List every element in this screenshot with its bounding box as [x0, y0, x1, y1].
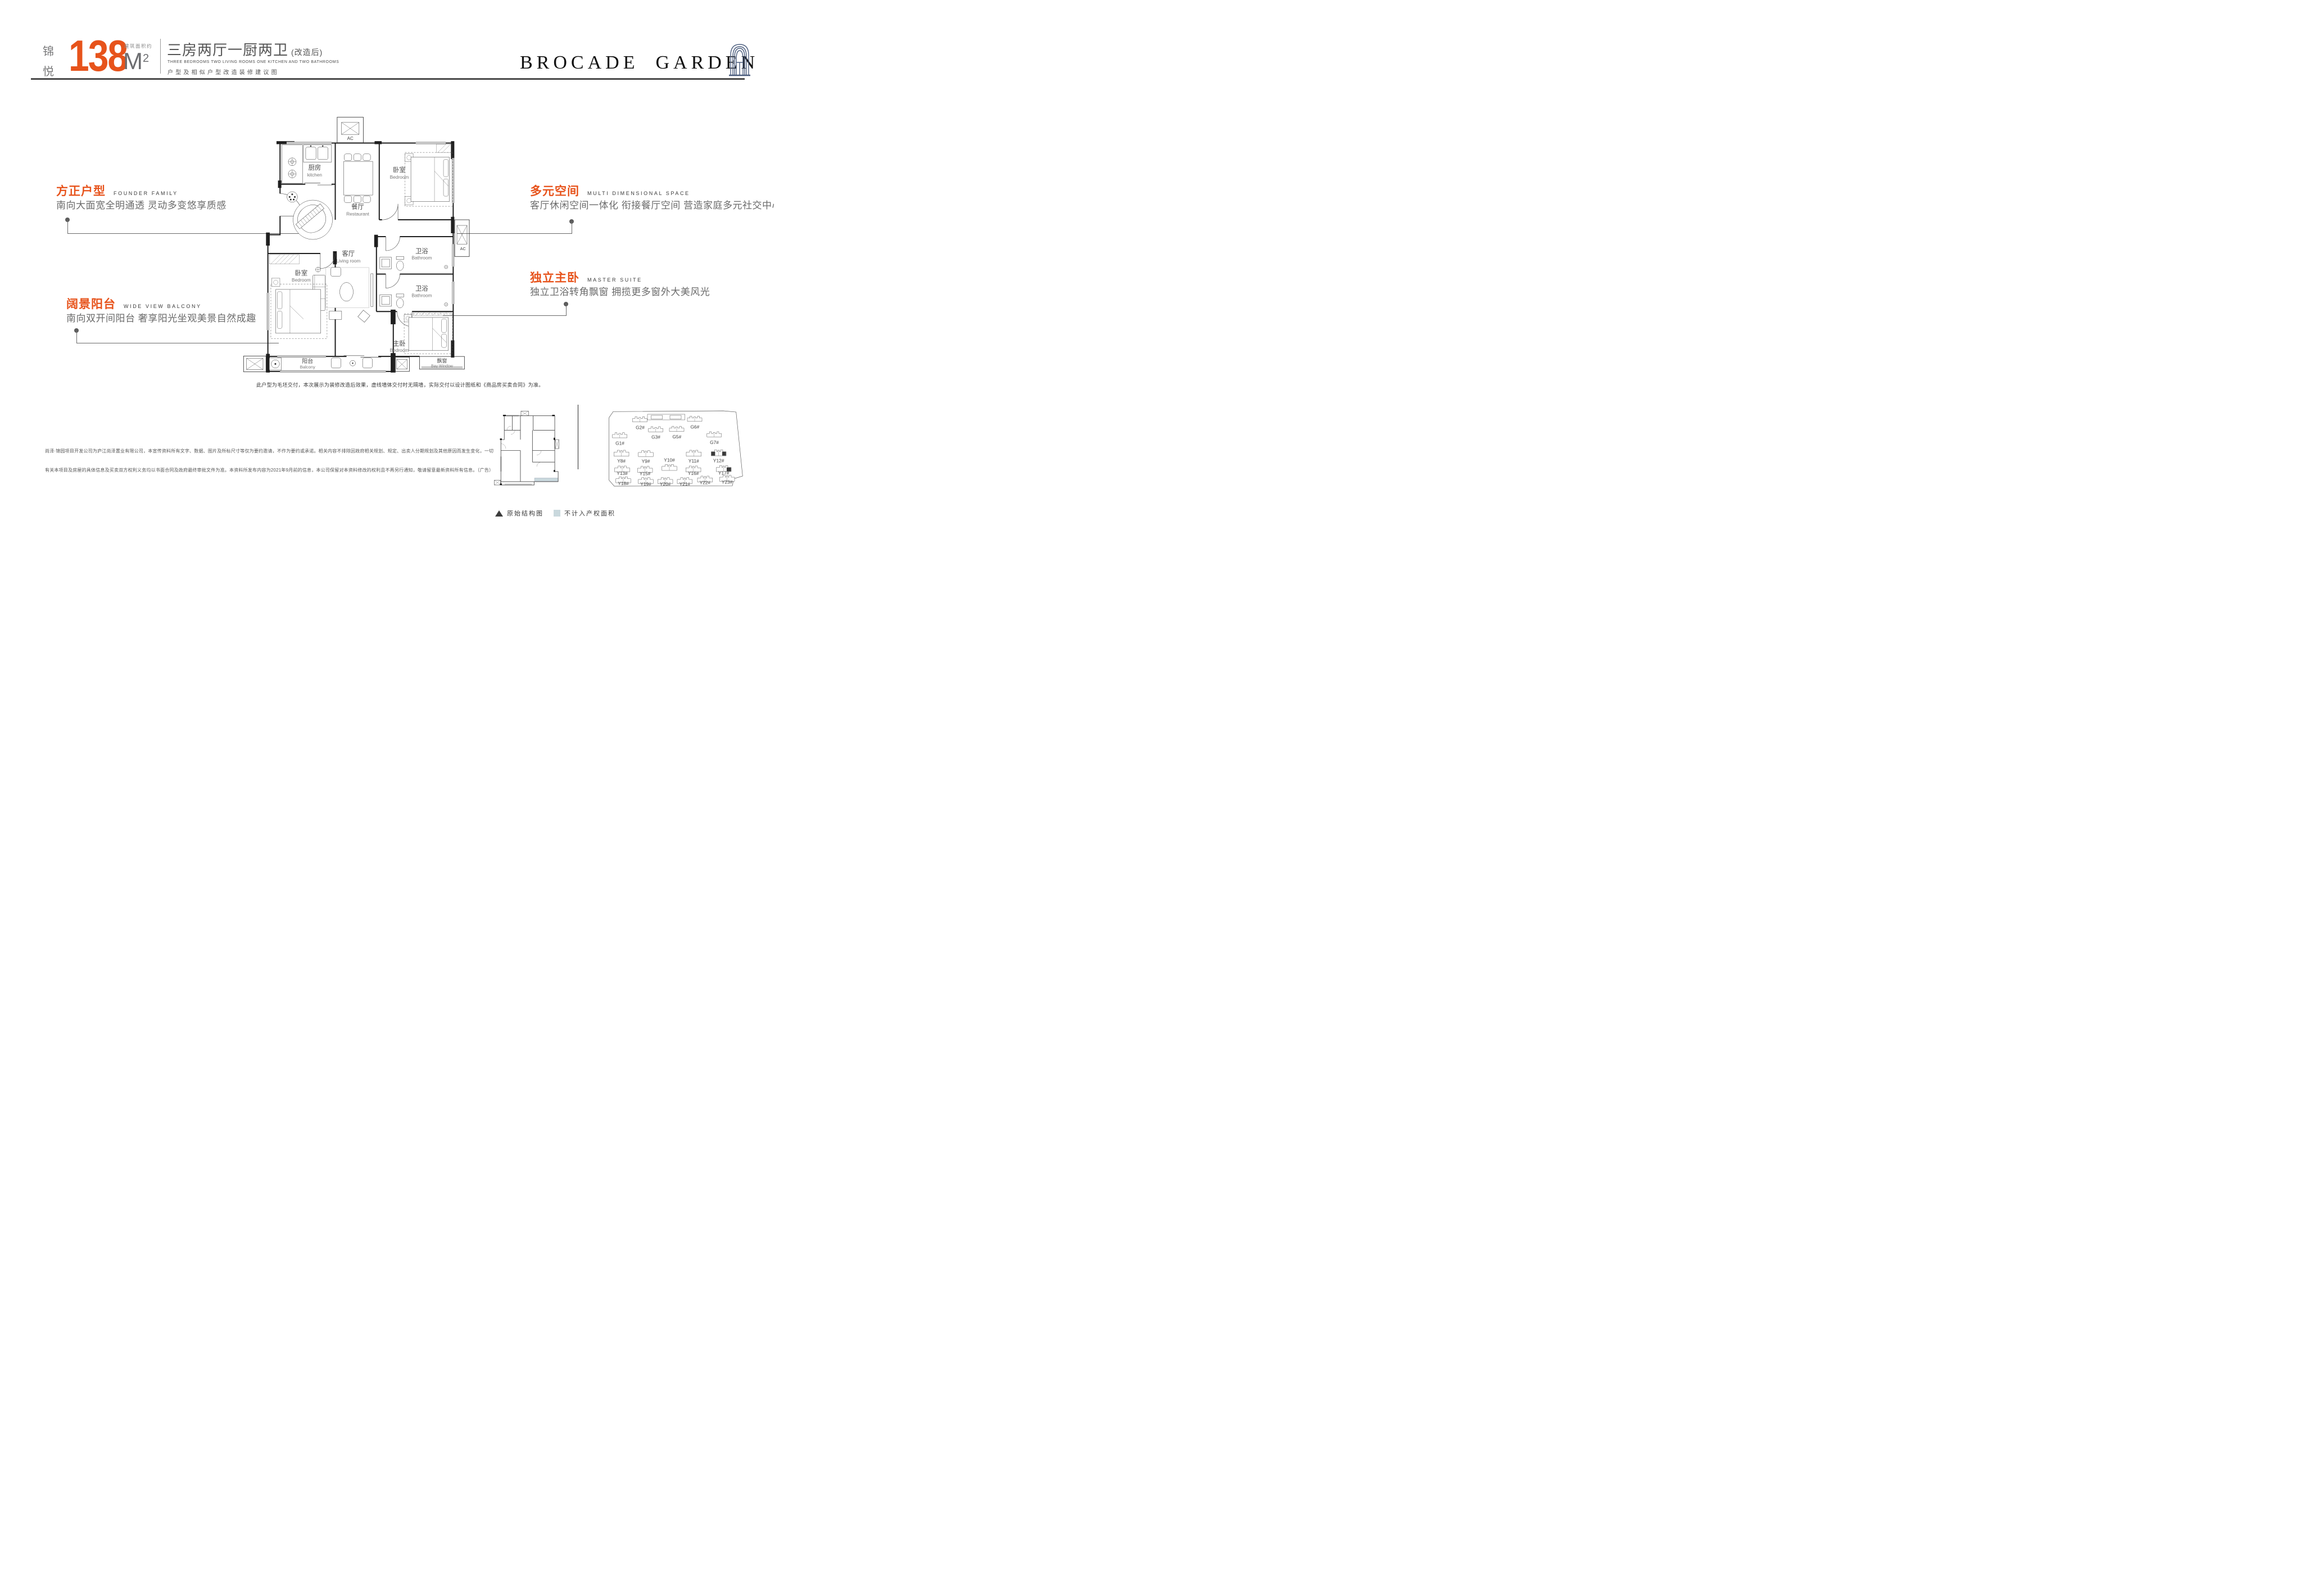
callout-balcony: 阔景阳台 WIDE VIEW BALCONY	[66, 295, 202, 312]
arch-logo-icon	[729, 43, 750, 77]
bldg-label-g5: G5#	[672, 434, 681, 440]
callout-founder-en: FOUNDER FAMILY	[114, 191, 178, 196]
disclaimer-line-1: 尚泽·锦园项目开发公司为庐江尚泽置业有限公司，本宣传资料所有文字、数据、图片及所…	[45, 448, 493, 454]
bldg-label-g2: G2#	[636, 425, 645, 431]
bldg-label-g7: G7#	[710, 440, 719, 445]
label-bath-lower-cn: 卫浴	[415, 285, 428, 292]
ac-label: AC	[347, 136, 354, 141]
bed-top-right	[405, 152, 452, 206]
bldg-label-y21: Y21#	[679, 481, 691, 487]
layout-title-en: THREE BEDROOMS TWO LIVING ROOMS ONE KITC…	[167, 60, 339, 64]
bldg-label-y20: Y20#	[660, 481, 671, 487]
label-bay-cn: 飘窗	[437, 357, 447, 364]
site-plan: G1# G2# G3# G5# G6# G7# Y8# Y9# Y10# Y11…	[601, 406, 767, 491]
legend-excluded-area: 不计入产权面积	[554, 509, 615, 518]
bldg-label-y23: Y23#	[722, 479, 733, 484]
bldg-label-y9: Y9#	[642, 459, 650, 464]
label-living-cn: 客厅	[342, 250, 355, 257]
callout-multi-title: 多元空间	[530, 182, 579, 199]
plan-note: 此户型为毛坯交付，本次展示为装修改造后效果，虚线墙体交付时无隔墙，实际交付以设计…	[256, 381, 544, 388]
project-logo: BROCADE GARDEN	[520, 52, 759, 74]
bldg-label-y15: Y15#	[640, 471, 651, 477]
label-kitchen-cn: 厨房	[309, 164, 321, 171]
label-bedroom-top-cn: 卧室	[393, 166, 406, 174]
area-unit-m: M	[123, 48, 143, 74]
bldg-label-g1: G1#	[615, 441, 624, 446]
ac-unit-right: AC	[455, 220, 469, 256]
bathroom-fixtures	[380, 256, 448, 308]
label-kitchen-en: kitchen	[307, 172, 323, 178]
layout-title-cn: 三房两厅一厨两卫	[167, 42, 288, 58]
balcony-furniture	[269, 358, 372, 370]
label-dining-cn: 餐厅	[351, 203, 364, 211]
triangle-icon	[495, 510, 503, 517]
label-master-en: Bedroom	[390, 347, 409, 353]
bldg-label-y11: Y11#	[688, 458, 699, 464]
header-divider	[160, 39, 161, 74]
callout-balcony-en: WIDE VIEW BALCONY	[124, 304, 202, 309]
callout-founder-desc: 南向大面宽全明通透 灵动多变悠享质感	[56, 197, 226, 211]
clubhouse	[647, 414, 685, 420]
brand-vertical: 锦 悦	[43, 42, 54, 82]
excluded-area-swatch-icon	[554, 510, 560, 517]
leader-multi-vline	[572, 221, 572, 234]
leader-master-vline	[566, 304, 567, 316]
label-balcony-cn: 阳台	[302, 357, 313, 365]
callout-multi-en: MULTI DIMENSIONAL SPACE	[587, 191, 690, 196]
leader-balcony-vline	[76, 330, 77, 343]
site-buildings	[613, 416, 735, 483]
callout-master-en: MASTER SUITE	[587, 277, 642, 283]
grand-piano	[291, 198, 333, 239]
ac-unit-bottom-left	[243, 356, 266, 372]
area-unit-sup: 2	[143, 52, 149, 65]
bldg-label-y12: Y12#	[713, 458, 724, 463]
legend-original-structure-label: 原始结构图	[507, 509, 543, 518]
label-bath-upper-cn: 卫浴	[415, 247, 428, 255]
bldg-label-g6: G6#	[690, 424, 699, 429]
callout-multi-desc: 客厅休闲空间一体化 衔接餐厅空间 营造家庭多元社交中心	[530, 197, 774, 211]
brochure-page: 锦 悦 138 建筑面积约 M2 三房两厅一厨两卫(改造后) THREE BED…	[0, 0, 774, 531]
callout-balcony-desc: 南向双开间阳台 奢享阳光坐观美景自然成趣	[66, 310, 256, 324]
bed-master	[404, 314, 452, 354]
label-bath-lower-en: Bathroom	[411, 292, 432, 298]
label-balcony-en: Balcony	[300, 364, 315, 369]
living-furniture	[313, 267, 373, 322]
mini-plan-walls	[501, 416, 558, 485]
bldg-label-y16: Y16#	[688, 470, 699, 476]
excluded-area-strip	[534, 478, 558, 481]
layout-title-suffix: (改造后)	[291, 48, 323, 57]
ac-unit-top: AC	[337, 117, 364, 143]
original-structure-plan	[487, 400, 573, 500]
layout-note: 户型及相似户型改造装修建议图	[167, 67, 279, 76]
legend-excluded-area-label: 不计入产权面积	[564, 509, 615, 518]
disclaimer-line-2: 有关本项目及房屋的具体信息及买卖双方权利义务均以书面合同及政府最终审批文件为准。…	[45, 467, 493, 473]
site-plan-divider	[578, 405, 578, 469]
label-bay-en: Bay Window	[431, 364, 454, 368]
label-bedroom-top-en: Bedroom	[390, 174, 409, 180]
bldg-label-g3: G3#	[651, 434, 660, 440]
dining-set	[344, 154, 373, 203]
legend: 原始结构图 不计入产权面积	[495, 509, 615, 518]
header-rule	[31, 78, 745, 80]
main-floorplan: AC AC	[242, 113, 474, 377]
label-dining-en: Restaurant	[346, 211, 369, 217]
bldg-label-y10: Y10#	[664, 458, 675, 463]
callout-founder: 方正户型 FOUNDER FAMILY	[56, 182, 178, 199]
layout-title: 三房两厅一厨两卫(改造后)	[167, 39, 323, 60]
bldg-label-y19: Y19#	[640, 481, 651, 487]
label-bedroom-left-cn: 卧室	[295, 269, 308, 277]
bldg-label-y22: Y22#	[700, 480, 711, 486]
mini-plan-ac	[495, 411, 559, 485]
foyer-table	[287, 192, 298, 202]
callout-master-title: 独立主卧	[530, 269, 579, 286]
logo-word-1: BROCADE	[520, 52, 638, 74]
brand-char-1: 锦	[43, 42, 54, 62]
callout-founder-title: 方正户型	[56, 182, 106, 199]
callout-master-desc: 独立卫浴转角飘窗 拥揽更多窗外大美风光	[530, 284, 710, 298]
bldg-label-y18: Y18#	[618, 481, 629, 486]
ac-label: AC	[460, 246, 466, 251]
bldg-label-y17: Y17#	[718, 470, 730, 476]
callout-multi: 多元空间 MULTI DIMENSIONAL SPACE	[530, 182, 690, 199]
label-bedroom-left-en: Bedroom	[292, 277, 311, 283]
ac-unit-bottom-middle	[395, 357, 410, 372]
area-unit: M2	[123, 49, 149, 73]
label-bath-upper-en: Bathroom	[411, 255, 432, 261]
bldg-label-y8: Y8#	[617, 458, 626, 464]
bldg-label-y13: Y13#	[617, 470, 628, 476]
kitchen-fixtures	[282, 145, 332, 183]
callout-balcony-title: 阔景阳台	[66, 295, 116, 312]
callout-master: 独立主卧 MASTER SUITE	[530, 269, 642, 286]
leader-founder-vline	[67, 220, 68, 234]
mini-plan-accents	[500, 415, 555, 485]
mini-plan-windows	[500, 415, 532, 484]
area-number: 138	[69, 34, 127, 78]
mini-plan-doors	[501, 426, 541, 467]
legend-original-structure: 原始结构图	[495, 509, 543, 518]
label-master-cn: 主卧	[393, 340, 406, 347]
leader-multi-hline	[457, 233, 572, 234]
label-living-en: Living room	[336, 258, 360, 264]
